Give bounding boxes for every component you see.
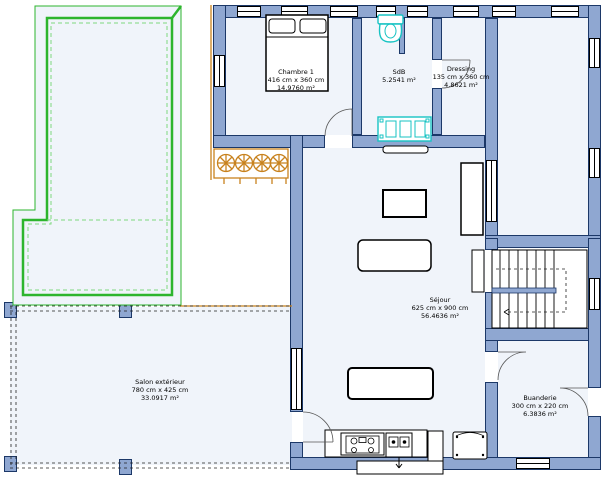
window[interactable] — [551, 6, 579, 17]
window[interactable] — [516, 458, 550, 469]
room-area: 5.2541 m² — [382, 76, 416, 84]
wall[interactable] — [432, 88, 442, 135]
room-label-sejour[interactable]: Séjour 625 cm x 900 cm 56.4636 m² — [412, 296, 469, 320]
wall[interactable] — [588, 238, 601, 388]
room-label-chambre1[interactable]: Chambre 1 416 cm x 360 cm 14.9760 m² — [268, 68, 325, 92]
wall[interactable] — [213, 135, 325, 148]
room-name: Buanderie — [512, 394, 569, 402]
window[interactable] — [453, 6, 479, 17]
window[interactable] — [407, 6, 428, 17]
room-area: 4.8621 m² — [433, 81, 490, 89]
room-area: 33.0917 m² — [132, 394, 189, 402]
room-dimensions: 625 cm x 900 cm — [412, 304, 469, 312]
wall[interactable] — [432, 18, 442, 60]
window[interactable] — [589, 148, 600, 178]
window[interactable] — [492, 6, 516, 17]
window[interactable] — [376, 6, 396, 17]
window[interactable] — [237, 6, 261, 17]
room-area: 6.3836 m² — [512, 410, 569, 418]
room-label-salon-exterieur[interactable]: Salon extérieur 780 cm x 425 cm 33.0917 … — [132, 378, 189, 402]
room-name: Dressing — [433, 65, 490, 73]
post[interactable] — [119, 459, 132, 475]
wall[interactable] — [485, 328, 601, 341]
room-dimensions: 300 cm x 220 cm — [512, 402, 569, 410]
post[interactable] — [4, 456, 17, 472]
swimming-pool-icon[interactable] — [13, 6, 181, 305]
wall[interactable] — [352, 18, 362, 135]
post[interactable] — [119, 302, 132, 318]
window[interactable] — [214, 55, 225, 87]
wall-toilet-partition[interactable] — [399, 18, 405, 54]
room-name: Séjour — [412, 296, 469, 304]
window[interactable] — [281, 6, 308, 17]
window[interactable] — [330, 6, 358, 17]
room-name: SdB — [382, 68, 416, 76]
wall[interactable] — [485, 292, 498, 352]
window[interactable] — [291, 348, 302, 410]
room-label-sdb[interactable]: SdB 5.2541 m² — [382, 68, 416, 84]
floor-plan-canvas: Chambre 1 416 cm x 360 cm 14.9760 m² SdB… — [0, 0, 601, 478]
wall[interactable] — [290, 457, 601, 470]
window[interactable] — [589, 38, 600, 68]
wall[interactable] — [352, 135, 485, 148]
room-dimensions: 780 cm x 425 cm — [132, 386, 189, 394]
room-name: Salon extérieur — [132, 378, 189, 386]
room-floor-top-right — [498, 18, 588, 235]
room-name: Chambre 1 — [268, 68, 325, 76]
wall[interactable] — [485, 235, 601, 248]
post[interactable] — [4, 302, 17, 318]
room-label-dressing[interactable]: Dressing 135 cm x 360 cm 4.8621 m² — [433, 65, 490, 89]
window[interactable] — [589, 278, 600, 310]
window[interactable] — [486, 160, 497, 222]
room-area: 14.9760 m² — [268, 84, 325, 92]
room-dimensions: 416 cm x 360 cm — [268, 76, 325, 84]
room-area: 56.4636 m² — [412, 312, 469, 320]
room-floor-stairwell — [498, 248, 588, 328]
room-dimensions: 135 cm x 360 cm — [433, 73, 490, 81]
wall[interactable] — [485, 238, 498, 250]
room-label-buanderie[interactable]: Buanderie 300 cm x 220 cm 6.3836 m² — [512, 394, 569, 418]
